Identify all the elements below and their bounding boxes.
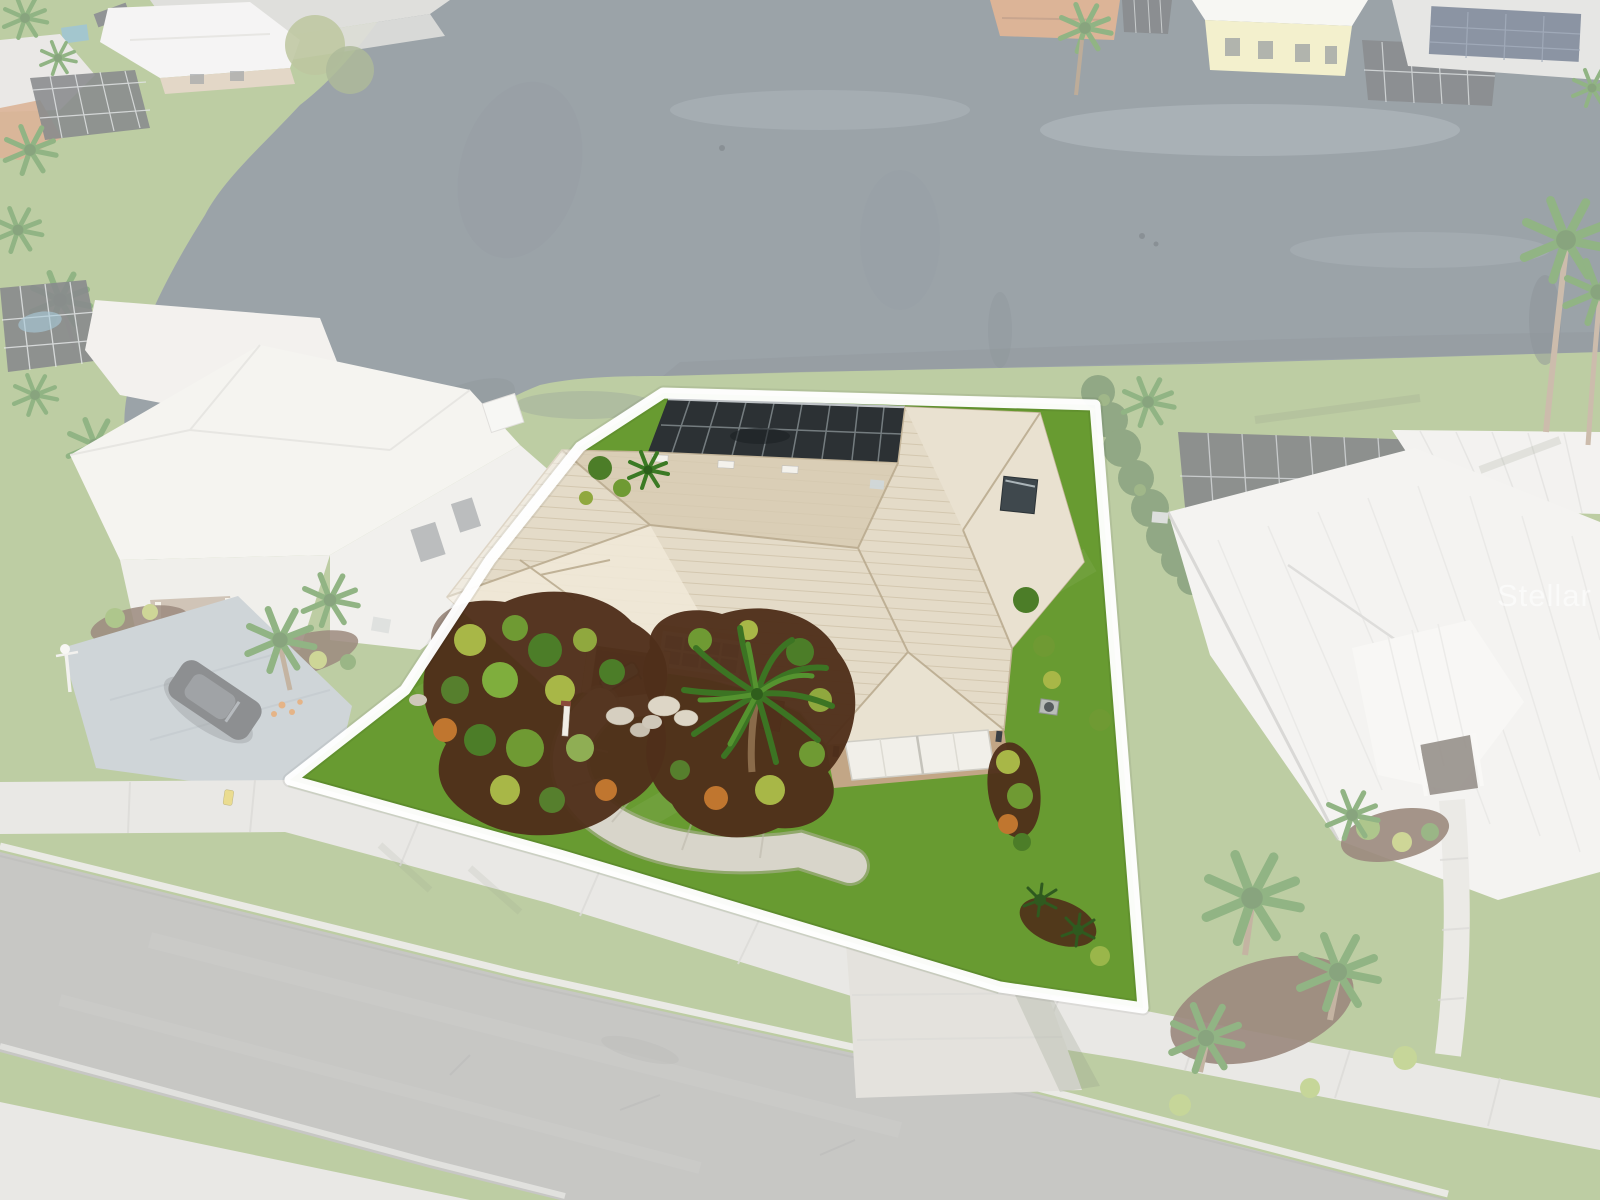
coach-lamp — [995, 731, 1002, 743]
landscape-rock — [409, 694, 427, 706]
roof-vent — [718, 461, 734, 469]
landscape-rock — [606, 707, 634, 725]
landscape-rock — [648, 696, 680, 716]
aerial-photo: Stellar MLS — [0, 0, 1600, 1200]
stellar-mls-watermark: Stellar MLS — [1497, 578, 1600, 613]
skylight — [870, 479, 885, 489]
chimney-vent — [1000, 476, 1037, 513]
roof-vent — [782, 466, 798, 474]
